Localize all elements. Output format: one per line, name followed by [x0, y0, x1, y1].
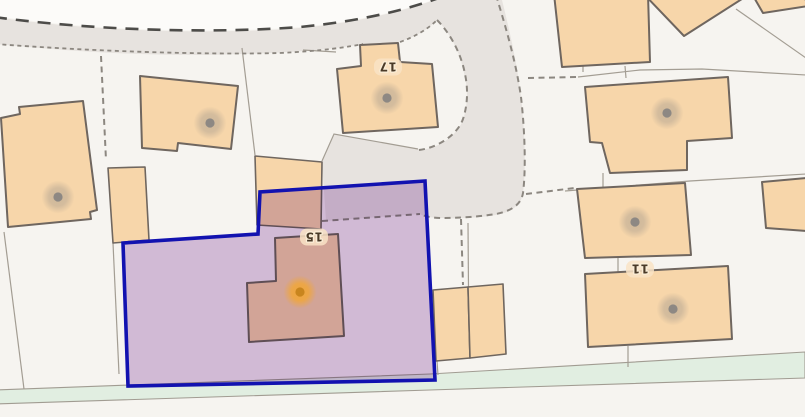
building-top-right-a[interactable] — [554, 0, 650, 67]
map-canvas[interactable]: 171511 — [0, 0, 805, 417]
map-marker-default[interactable] — [619, 206, 652, 239]
marker-dot-icon — [662, 108, 671, 117]
house-number-text: 17 — [379, 60, 397, 74]
marker-dot-icon — [53, 192, 62, 201]
marker-dot-icon — [205, 118, 214, 127]
marker-dot-icon — [295, 287, 304, 296]
marker-dot-icon — [630, 217, 639, 226]
map-marker-default[interactable] — [651, 97, 684, 130]
map-marker-default[interactable] — [42, 181, 75, 214]
map-marker-15[interactable] — [284, 276, 317, 309]
building-small-pair-left[interactable] — [433, 287, 470, 361]
map-viewport[interactable]: 171511 — [0, 0, 805, 417]
house-number-label-11: 11 — [626, 261, 654, 278]
house-number-text: 11 — [631, 262, 649, 276]
house-number-text: 15 — [305, 230, 323, 244]
house-number-label-17: 17 — [374, 59, 402, 76]
building-small-pair-right[interactable] — [468, 284, 506, 358]
building-right-edge[interactable] — [762, 178, 805, 231]
house-number-label-15: 15 — [300, 229, 328, 246]
map-marker-default[interactable] — [194, 107, 227, 140]
marker-dot-icon — [382, 93, 391, 102]
marker-dot-icon — [668, 304, 677, 313]
map-marker-17[interactable] — [371, 82, 404, 115]
map-marker-11[interactable] — [657, 293, 690, 326]
building-small-left[interactable] — [108, 167, 149, 243]
